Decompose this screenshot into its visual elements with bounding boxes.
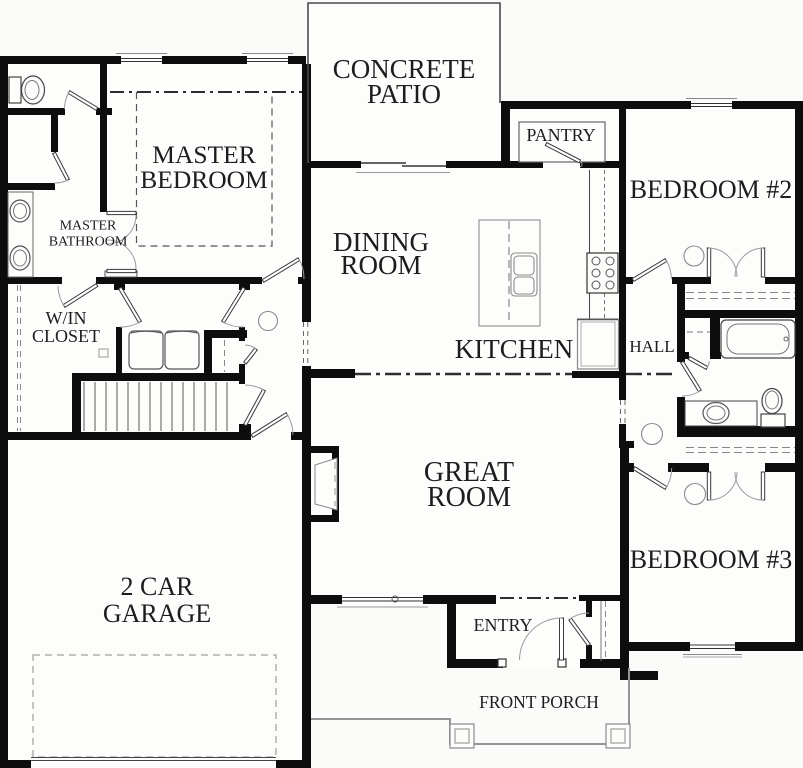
svg-text:ROOM: ROOM — [340, 250, 421, 280]
svg-text:ENTRY: ENTRY — [473, 615, 532, 635]
svg-text:CLOSET: CLOSET — [32, 326, 100, 346]
svg-text:BATHROOM: BATHROOM — [49, 235, 128, 250]
svg-text:W/IN: W/IN — [46, 308, 87, 328]
svg-text:PANTRY: PANTRY — [526, 125, 595, 145]
svg-text:2 CAR: 2 CAR — [121, 572, 195, 601]
svg-text:BEDROOM #3: BEDROOM #3 — [630, 545, 793, 574]
svg-text:KITCHEN: KITCHEN — [455, 334, 573, 364]
svg-text:FRONT PORCH: FRONT PORCH — [479, 692, 599, 712]
svg-text:GARAGE: GARAGE — [103, 599, 211, 628]
svg-text:ROOM: ROOM — [427, 482, 511, 513]
svg-text:PATIO: PATIO — [367, 79, 441, 109]
svg-text:HALL: HALL — [629, 337, 674, 356]
svg-text:MASTER: MASTER — [60, 219, 117, 234]
svg-text:BEDROOM #2: BEDROOM #2 — [630, 175, 793, 204]
svg-text:BEDROOM: BEDROOM — [140, 165, 268, 194]
